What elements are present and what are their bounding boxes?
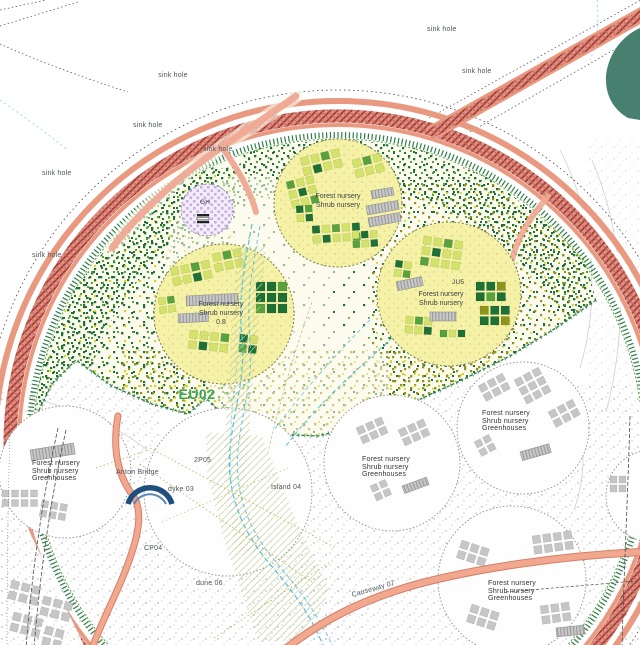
nursery-circle-5-text: Forest nursery Shrub nursery Greenhouses bbox=[488, 580, 536, 603]
site-plan-map: sink hole sink hole sink hole sink hole … bbox=[0, 0, 640, 645]
circle-code-label: JU5 bbox=[452, 279, 464, 286]
greenhouses-label: Greenhouses bbox=[362, 471, 410, 479]
dyke-03-label: dyke 03 bbox=[168, 486, 194, 494]
forest-nursery-label: Forest nursery bbox=[488, 580, 536, 588]
scale-glyph-icon bbox=[197, 214, 209, 223]
area-figure-label: 0.8 bbox=[198, 318, 243, 327]
area-code-label: EU02 bbox=[178, 386, 215, 402]
forest-nursery-label: Forest nursery bbox=[482, 410, 530, 418]
sink-hole-label: sink hole bbox=[462, 68, 491, 76]
sink-hole-label: sink hole bbox=[203, 146, 232, 154]
crop-square-grid bbox=[440, 330, 465, 337]
shrub-nursery-label: Shrub nursery bbox=[418, 299, 463, 308]
dune-06-label: dune 06 bbox=[196, 580, 223, 588]
sink-hole-label: sink hole bbox=[133, 122, 162, 130]
nursery-circle-1-text: Forest nursery Shrub nursery Greenhouses bbox=[32, 460, 80, 483]
shrub-nursery-label: Shrub nursery bbox=[362, 464, 410, 472]
greenhouses-label: Greenhouses bbox=[488, 595, 536, 603]
yellow-circle-right-text: Forest nursery Shrub nursery bbox=[418, 290, 463, 308]
cp-04-label: CP04 bbox=[144, 545, 162, 553]
lilac-greenhouse-circle bbox=[181, 184, 233, 236]
bridge-label: Anton Bridge bbox=[116, 469, 159, 477]
shrub-nursery-label: Shrub nursery bbox=[32, 468, 80, 476]
yellow-circle-left-text: Forest nursery Shrub nursery 0.8 bbox=[198, 300, 243, 327]
shrub-nursery-label: Shrub nursery bbox=[198, 309, 243, 318]
forest-nursery-label: Forest nursery bbox=[198, 300, 243, 309]
nursery-circle-3-text: Forest nursery Shrub nursery Greenhouses bbox=[362, 456, 410, 479]
sink-hole-label: sink hole bbox=[42, 170, 71, 178]
forest-nursery-label: Forest nursery bbox=[362, 456, 410, 464]
yellow-circle-top-text: Forest nursery Shrub nursery bbox=[315, 192, 360, 210]
greenhouses-label: Greenhouses bbox=[32, 475, 80, 483]
island-04-label: Island 04 bbox=[271, 484, 301, 492]
shrub-nursery-label: Shrub nursery bbox=[315, 201, 360, 210]
nursery-circle-4-text: Forest nursery Shrub nursery Greenhouses bbox=[482, 410, 530, 433]
greenhouse-building bbox=[430, 312, 456, 321]
sink-hole-label: sink hole bbox=[32, 252, 61, 260]
sink-hole-label: sink hole bbox=[158, 72, 187, 80]
site-2p05-label: 2P05 bbox=[194, 457, 211, 465]
forest-nursery-label: Forest nursery bbox=[418, 290, 463, 299]
site-plan-drawing bbox=[0, 0, 640, 645]
forest-nursery-label: Forest nursery bbox=[32, 460, 80, 468]
greenhouse-gh-label: GH bbox=[200, 199, 210, 206]
shrub-nursery-label: Shrub nursery bbox=[488, 588, 536, 596]
forest-nursery-label: Forest nursery bbox=[315, 192, 360, 201]
sink-hole-label: sink hole bbox=[427, 26, 456, 34]
shrub-nursery-label: Shrub nursery bbox=[482, 418, 530, 426]
greenhouses-label: Greenhouses bbox=[482, 425, 530, 433]
